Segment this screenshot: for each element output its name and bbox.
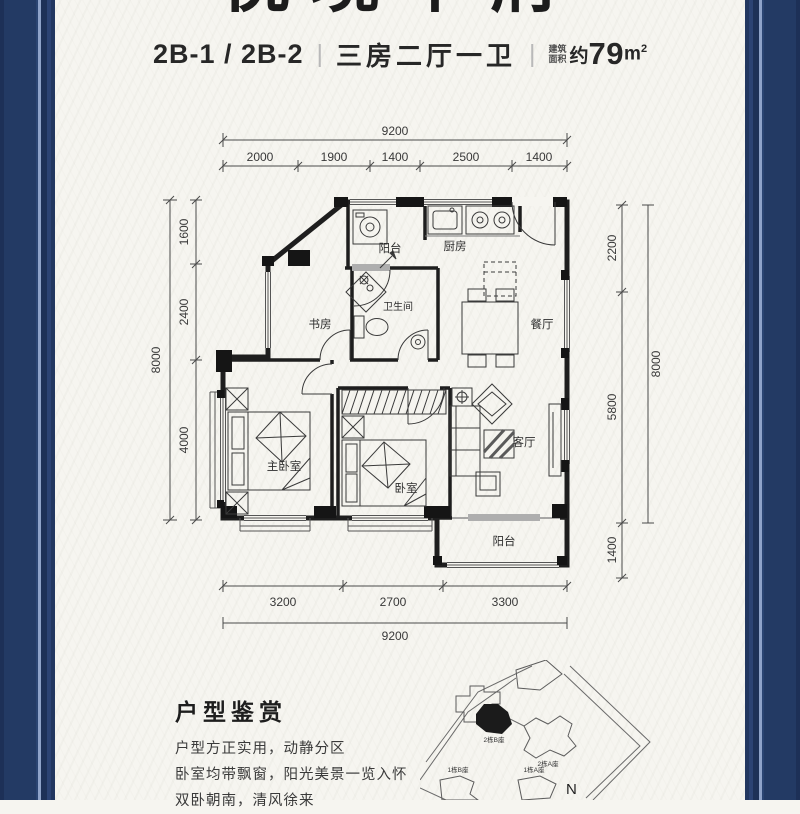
dim-top-seg: 1900 — [321, 150, 348, 164]
dim-top-seg: 1400 — [526, 150, 553, 164]
toilet — [354, 316, 388, 338]
wardrobe — [342, 390, 446, 414]
layout-type: 三房二厅一卫 — [336, 36, 516, 73]
dim-right-seg: 2200 — [605, 234, 619, 261]
nightstand — [226, 388, 248, 514]
divider-bar: | — [317, 40, 324, 69]
dim-left-total: 8000 — [149, 346, 163, 373]
dim-top-total: 9200 — [382, 124, 409, 138]
bed — [342, 440, 426, 506]
room-label-study: 书房 — [309, 318, 332, 331]
description-line: 卧室均带飘窗，阳光美景一览入怀 — [175, 762, 408, 788]
dim-left-seg: 4000 — [177, 426, 191, 453]
room-label-bathroom: 卫生间 — [383, 300, 413, 313]
description-block: 户型鉴赏 户型方正实用，动静分区 卧室均带飘窗，阳光美景一览入怀 双卧朝南，清风… — [175, 693, 408, 814]
room-label-balcony-bottom: 阳台 — [493, 534, 516, 548]
dim-right-bottom: 1400 — [605, 536, 619, 563]
fridge — [484, 262, 516, 296]
floorplan-drawing: 9200 2000 1900 1400 2500 1400 8000 1600 … — [140, 105, 670, 655]
dim-right-seg: 5800 — [605, 393, 619, 420]
dim-bottom-seg: 2700 — [380, 595, 407, 609]
armchair — [472, 384, 512, 424]
rug — [484, 430, 514, 458]
doors — [302, 202, 555, 424]
dim-bottom-seg: 3200 — [270, 595, 297, 609]
room-label-dining: 餐厅 — [531, 317, 554, 331]
floorplan-svg: 9200 2000 1900 1400 2500 1400 8000 1600 … — [140, 105, 670, 650]
siteplan-drawing: 2栋B座 2栋A座 1栋B座 1栋A座 N — [420, 660, 655, 805]
room-label-bedroom: 卧室 — [395, 481, 418, 495]
siteplan-label-1b: 1栋B座 — [448, 765, 469, 774]
siteplan-svg: 2栋B座 2栋A座 1栋B座 1栋A座 N — [420, 660, 655, 800]
lounge-chair — [476, 472, 500, 496]
dim-top-seg: 2500 — [453, 150, 480, 164]
description-line: 户型方正实用，动静分区 — [175, 736, 408, 762]
dim-top-seg: 2000 — [247, 150, 274, 164]
floorplan-flyer-page: { "header": { "masthead": "悦境华府", "unit_… — [0, 0, 800, 800]
description-lines: 户型方正实用，动静分区 卧室均带飘窗，阳光美景一览入怀 双卧朝南，清风徐来 — [175, 736, 408, 814]
dim-bottom-total: 9200 — [382, 629, 409, 643]
siteplan-label-2b: 2栋B座 — [484, 735, 505, 744]
kitchen-stove — [466, 206, 514, 234]
dimension-lines — [163, 133, 654, 629]
description-heading: 户型鉴赏 — [175, 693, 408, 727]
area-unit: m2 — [624, 43, 647, 65]
area-approx: 约 — [570, 41, 589, 68]
area-number: 79 — [589, 36, 624, 72]
dim-right-total: 8000 — [649, 350, 663, 377]
masthead-cropped-title: 悦境华府 — [55, 0, 745, 21]
siteplan-building-highlighted — [476, 704, 512, 734]
room-label-kitchen: 厨房 — [444, 240, 467, 253]
master-bed — [228, 412, 310, 490]
shower — [354, 270, 390, 306]
siteplan-buildings — [440, 660, 576, 800]
unit-code: 2B-1 / 2B-2 — [153, 39, 304, 70]
kitchen-sink — [428, 206, 462, 234]
dim-left-seg: 1600 — [177, 218, 191, 245]
side-table — [452, 388, 472, 406]
sofa — [450, 406, 480, 476]
dining-table — [462, 289, 518, 367]
siteplan-roads — [420, 666, 650, 800]
divider-bar: | — [529, 40, 536, 69]
area-label-stacked: 建筑 面积 — [549, 44, 567, 64]
siteplan-label-1a: 1栋A座 — [524, 765, 545, 774]
washbasin — [411, 335, 425, 349]
tv-cabinet — [549, 404, 561, 476]
masthead-text: 悦境华府 — [55, 0, 745, 18]
compass-north: N — [566, 781, 577, 798]
washing-machine — [353, 210, 387, 244]
description-line: 双卧朝南，清风徐来 — [175, 788, 408, 814]
dim-top-seg: 1400 — [382, 150, 409, 164]
left-navy-border — [0, 0, 55, 800]
subtitle-bar: 2B-1 / 2B-2 | 三房二厅一卫 | 建筑 面积 约 79 m2 — [55, 30, 745, 78]
room-label-living: 客厅 — [513, 435, 536, 449]
right-navy-border — [745, 0, 800, 800]
room-label-balcony-top: 阳台 — [379, 241, 402, 255]
area-group: 建筑 面积 约 79 m2 — [549, 36, 648, 72]
dim-left-seg: 2400 — [177, 298, 191, 325]
nightstand — [342, 416, 364, 438]
room-label-master-bedroom: 主卧室 — [267, 459, 302, 473]
dim-bottom-seg: 3300 — [492, 595, 519, 609]
